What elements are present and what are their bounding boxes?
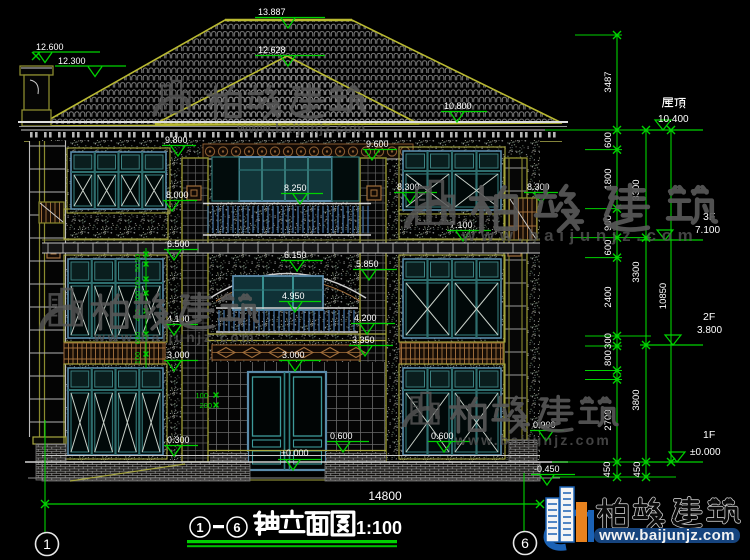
svg-text:10.800: 10.800 (444, 101, 472, 111)
svg-text:www.baijunjz.com: www.baijunjz.com (598, 527, 735, 544)
svg-text:0.600: 0.600 (330, 431, 353, 441)
svg-text:50: 50 (133, 264, 142, 272)
svg-text:200: 200 (199, 401, 212, 410)
svg-text:5.850: 5.850 (356, 259, 379, 269)
svg-text:1:100: 1:100 (356, 518, 402, 538)
svg-text:±0.000: ±0.000 (690, 447, 721, 458)
svg-text:450: 450 (632, 462, 643, 478)
svg-text:www.baijunjz.com: www.baijunjz.com (461, 226, 698, 245)
svg-text:6: 6 (521, 535, 529, 551)
svg-text:10.400: 10.400 (658, 114, 689, 125)
svg-text:0.300: 0.300 (167, 435, 190, 445)
svg-text:600: 600 (603, 132, 614, 148)
svg-text:3.800: 3.800 (697, 325, 722, 336)
svg-text:-0.450: -0.450 (534, 464, 560, 474)
svg-text:13.887: 13.887 (258, 7, 286, 17)
svg-text:3800: 3800 (631, 389, 642, 410)
svg-text:1F: 1F (703, 429, 715, 441)
svg-text:1: 1 (196, 520, 203, 535)
svg-text:www.baijunjz.com: www.baijunjz.com (93, 329, 256, 345)
svg-text:9.600: 9.600 (366, 139, 389, 149)
svg-text:8.250: 8.250 (284, 183, 307, 193)
svg-text:7.100: 7.100 (695, 225, 720, 236)
svg-text:100: 100 (133, 352, 142, 365)
svg-text:12.600: 12.600 (36, 42, 64, 52)
svg-text:10850: 10850 (658, 283, 669, 309)
svg-text:450: 450 (602, 462, 613, 478)
svg-text:50: 50 (133, 254, 142, 262)
svg-text:3300: 3300 (631, 261, 642, 282)
svg-text:2400: 2400 (603, 286, 614, 307)
svg-text:12.628: 12.628 (258, 45, 286, 55)
svg-text:3.350: 3.350 (352, 335, 375, 345)
svg-text:3.000: 3.000 (167, 350, 190, 360)
svg-text:0.600: 0.600 (431, 431, 454, 441)
svg-text:100: 100 (133, 277, 142, 290)
svg-text:±0.000: ±0.000 (281, 448, 308, 458)
svg-text:4.950: 4.950 (282, 291, 305, 301)
svg-text:12.300: 12.300 (58, 56, 86, 66)
svg-text:3487: 3487 (603, 71, 614, 92)
svg-text:4.200: 4.200 (354, 313, 377, 323)
svg-text:14800: 14800 (368, 489, 402, 503)
svg-text:6.500: 6.500 (167, 239, 190, 249)
svg-text:www.baijunjz.com: www.baijunjz.com (236, 120, 366, 136)
svg-text:6: 6 (233, 520, 240, 535)
svg-text:6.150: 6.150 (284, 250, 307, 260)
svg-text:2F: 2F (703, 311, 715, 323)
svg-text:300: 300 (603, 333, 614, 349)
svg-text:3.000: 3.000 (282, 350, 305, 360)
svg-text:100: 100 (195, 391, 208, 400)
svg-text:8.000: 8.000 (166, 190, 189, 200)
svg-text:800: 800 (603, 350, 614, 366)
svg-text:9.800: 9.800 (165, 135, 188, 145)
svg-text:www.baijunjz.com: www.baijunjz.com (454, 432, 611, 448)
svg-text:1: 1 (43, 536, 51, 552)
